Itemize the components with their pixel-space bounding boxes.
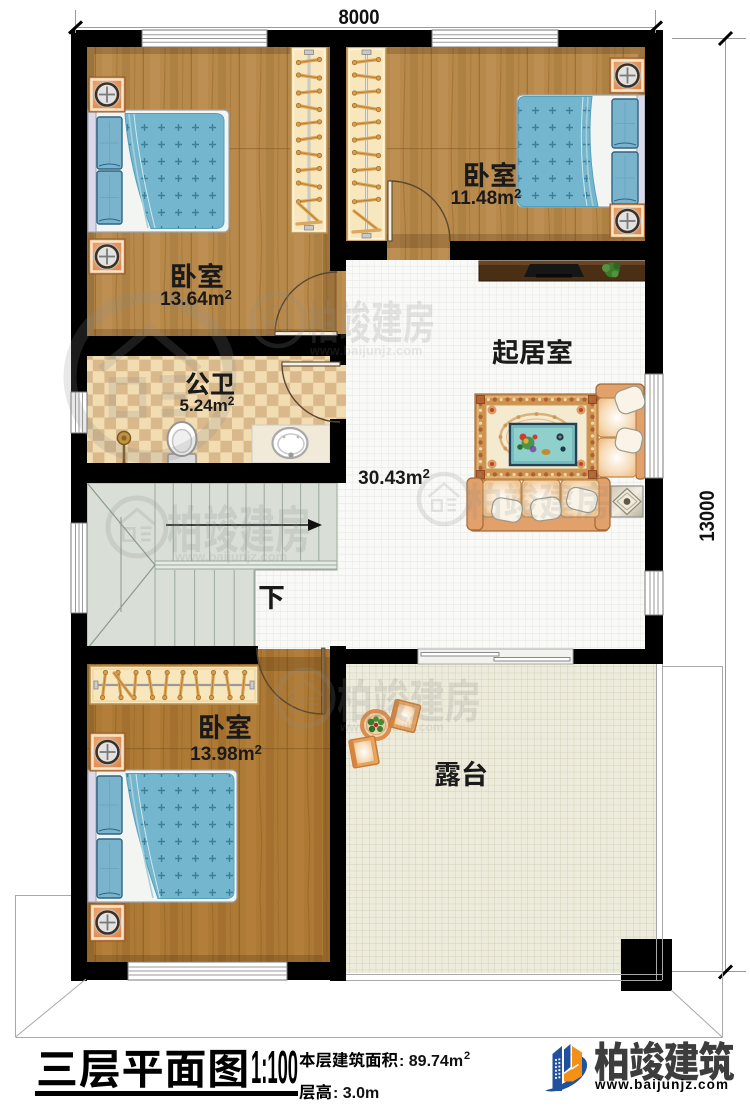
svg-text:: 3.0m: : 3.0m: [333, 1085, 379, 1102]
svg-text:1:100: 1:100: [251, 1042, 298, 1093]
svg-text:2: 2: [464, 1050, 470, 1062]
svg-text:13000: 13000: [696, 490, 719, 541]
svg-text:www.baijunjz.com: www.baijunjz.com: [339, 720, 444, 734]
svg-text:8000: 8000: [338, 6, 379, 29]
svg-text:5.24m2: 5.24m2: [180, 394, 235, 415]
svg-text:www.baijunjz.com: www.baijunjz.com: [309, 344, 423, 358]
svg-text:www.baijunjz.com: www.baijunjz.com: [594, 1077, 729, 1092]
svg-text:13.64m2: 13.64m2: [160, 287, 232, 310]
svg-text:: 89.74m: : 89.74m: [399, 1053, 463, 1070]
svg-text:30.43m2: 30.43m2: [358, 466, 430, 489]
svg-text:13.98m2: 13.98m2: [190, 742, 262, 765]
svg-text:www.baijunjz.com: www.baijunjz.com: [174, 549, 287, 564]
svg-text:11.48m2: 11.48m2: [451, 186, 522, 209]
